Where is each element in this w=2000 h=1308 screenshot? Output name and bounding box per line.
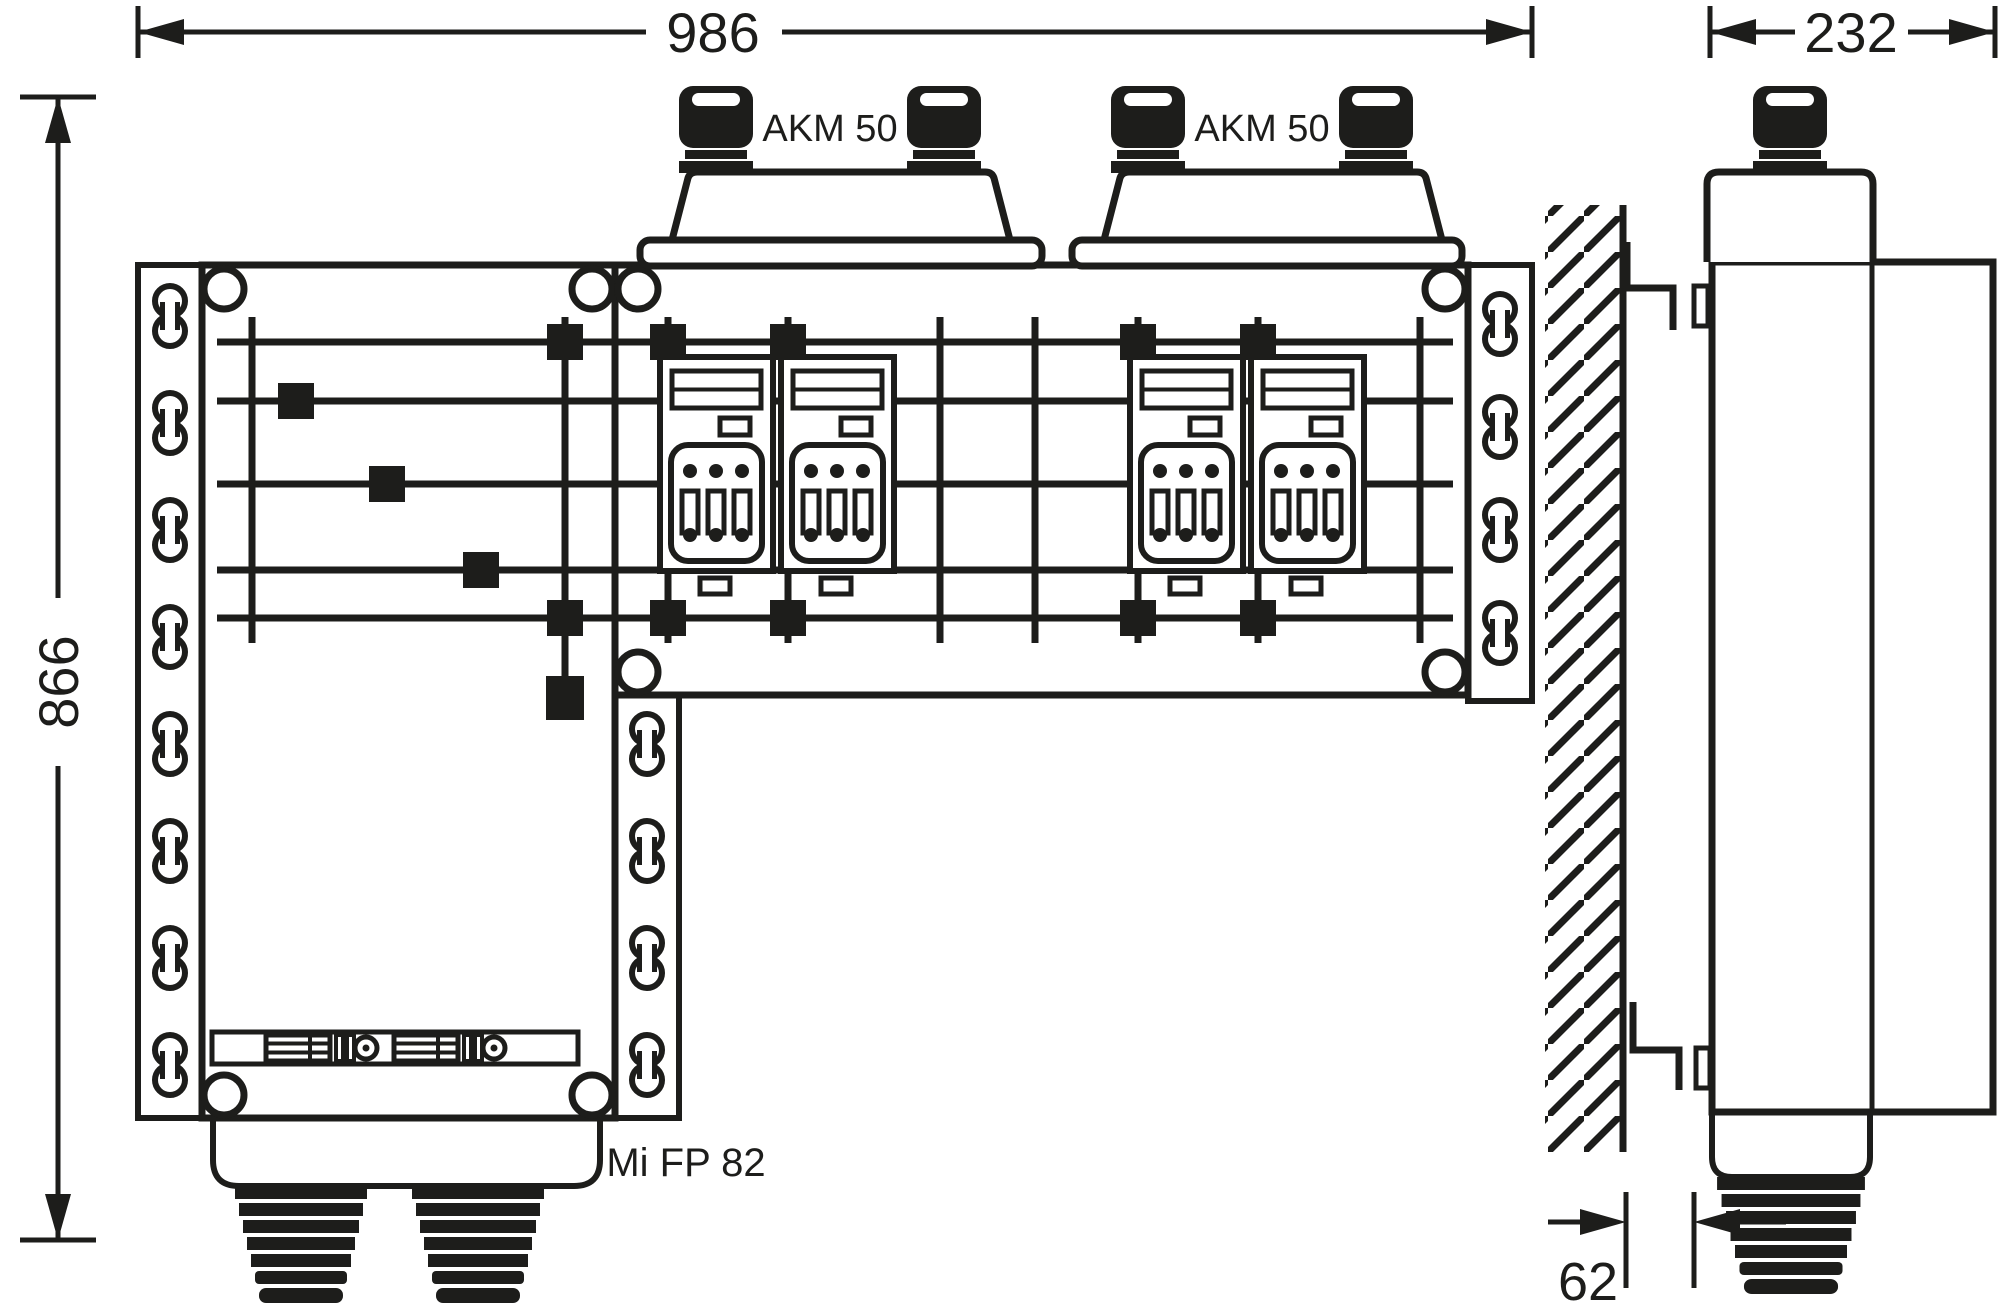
hood-1-label: AKM 50 — [762, 108, 897, 150]
hood-2-label: AKM 50 — [1194, 108, 1329, 150]
feeder-terminal-block — [546, 676, 584, 720]
side-enclosure-body — [1712, 262, 1993, 1112]
front-height-value: 866 — [27, 635, 90, 728]
fuse-switch-unit-3 — [1130, 357, 1243, 594]
side-view — [1545, 86, 1993, 1294]
drawing-canvas: AKM 50 AKM 50 — [0, 0, 2000, 1308]
wall-hatching — [1545, 205, 1623, 1152]
fuse-switch-unit-2 — [781, 357, 894, 594]
fuse-switch-unit-1 — [660, 357, 773, 594]
wall-clearance-value: 62 — [1558, 1252, 1618, 1308]
side-depth-value: 232 — [1804, 1, 1897, 64]
product-label: Mi FP 82 — [606, 1141, 765, 1185]
technical-drawing-page: AKM 50 AKM 50 — [0, 0, 2000, 1308]
front-width-value: 986 — [666, 1, 759, 64]
fuse-switch-unit-4 — [1251, 357, 1364, 594]
